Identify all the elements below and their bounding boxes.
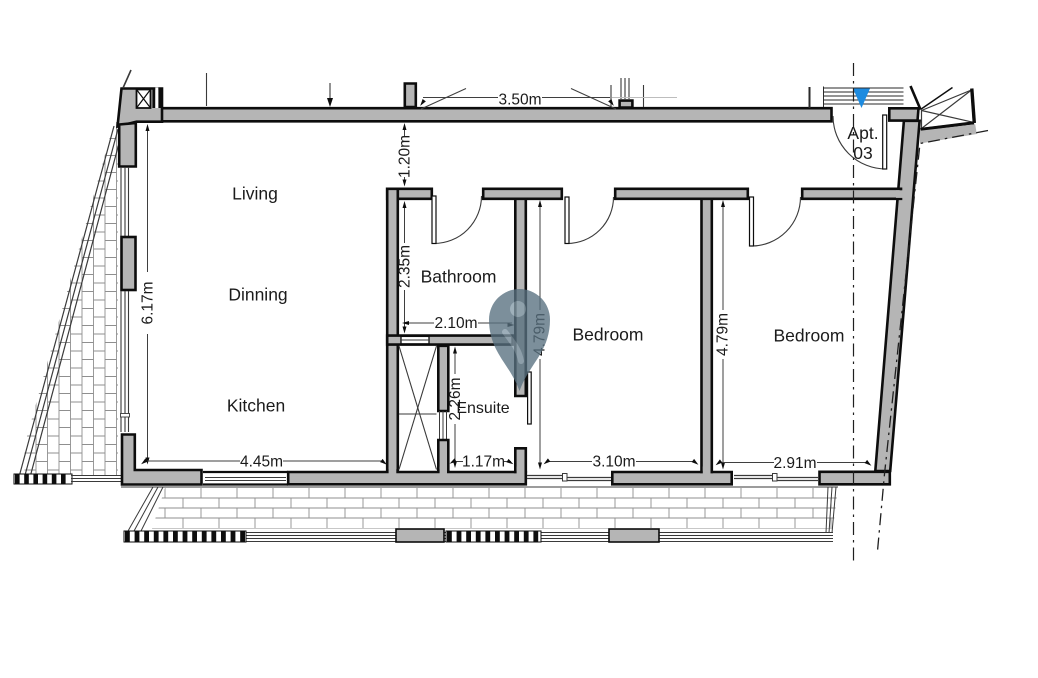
svg-text:1.20m: 1.20m: [397, 135, 414, 178]
svg-text:Bedroom: Bedroom: [572, 325, 643, 345]
svg-text:2.10m: 2.10m: [434, 315, 477, 332]
svg-text:Dinning: Dinning: [228, 285, 287, 305]
svg-text:6.17m: 6.17m: [140, 281, 157, 324]
svg-text:Ensuite: Ensuite: [456, 400, 509, 417]
svg-text:3.50m: 3.50m: [498, 92, 541, 109]
svg-text:Apt.: Apt.: [847, 123, 878, 143]
svg-text:4.79m: 4.79m: [715, 313, 732, 356]
svg-text:Bedroom: Bedroom: [773, 326, 844, 346]
svg-text:Living: Living: [232, 184, 278, 204]
svg-text:1.17m: 1.17m: [462, 454, 505, 471]
svg-text:4.45m: 4.45m: [240, 454, 283, 471]
svg-text:2.91m: 2.91m: [773, 455, 816, 472]
svg-text:Kitchen: Kitchen: [227, 396, 285, 416]
svg-text:03: 03: [853, 143, 872, 163]
svg-text:2.35m: 2.35m: [397, 245, 414, 288]
svg-text:3.10m: 3.10m: [592, 454, 635, 471]
svg-text:Bathroom: Bathroom: [421, 267, 497, 287]
